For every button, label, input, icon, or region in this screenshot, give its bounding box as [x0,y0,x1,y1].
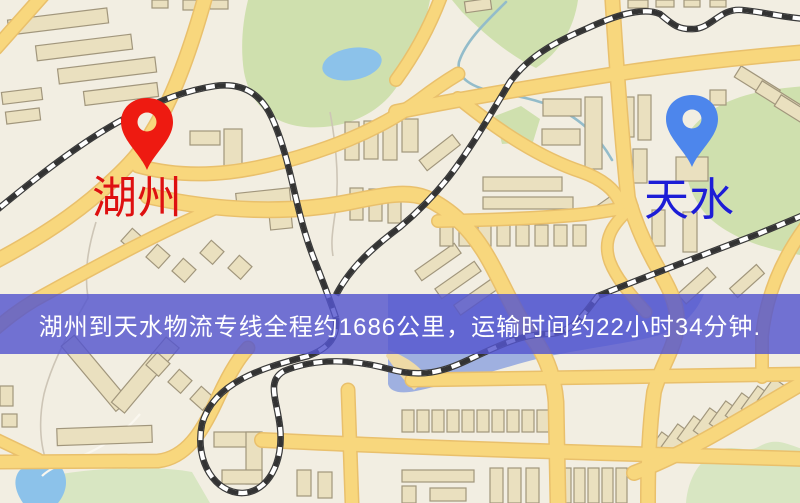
origin-city-label: 湖州 [52,176,222,221]
map-canvas [0,0,800,503]
route-info-banner: 湖州到天水物流专线全程约1686公里，运输时间约22小时34分钟. [0,294,800,354]
origin-pin-icon[interactable] [119,96,175,172]
route-info-text: 湖州到天水物流专线全程约1686公里，运输时间约22小时34分钟. [39,307,761,342]
destination-city-label: 天水 [604,178,774,223]
destination-pin-icon[interactable] [664,93,720,169]
map-view[interactable]: 湖州 天水 湖州到天水物流专线全程约1686公里，运输时间约22小时34分钟. [0,0,800,503]
